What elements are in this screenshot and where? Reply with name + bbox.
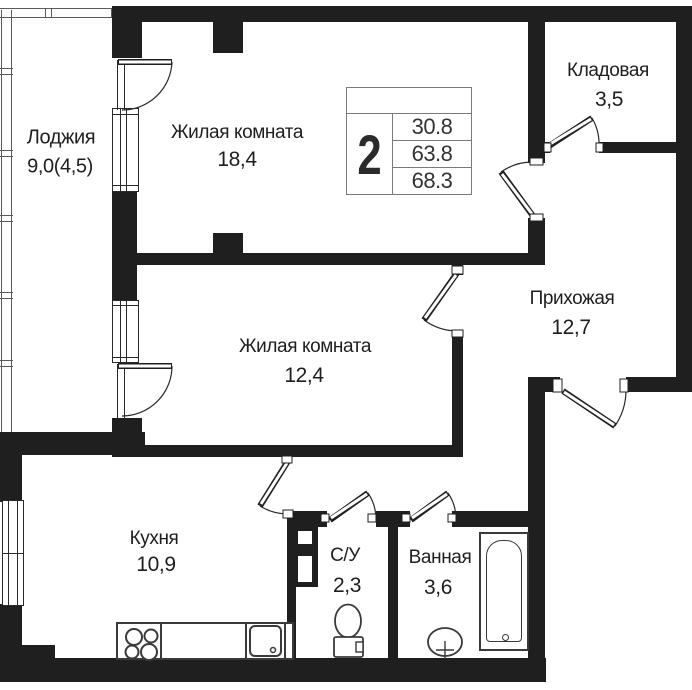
floor-plan: Лоджия 9,0(4,5) Жилая комната 18,4 Кладо… (0, 0, 692, 690)
area-value-total: 68.3 (393, 167, 471, 194)
room-label-kitchen: Кухня (130, 528, 179, 550)
room-area-living2: 12,4 (284, 364, 323, 388)
door-arc-living1-balcony (122, 62, 172, 110)
room-area-storage: 3,5 (595, 88, 623, 112)
door-arc-living1 (501, 162, 533, 172)
room-area-wc: 2,3 (333, 574, 361, 598)
room-area-living1: 18,4 (217, 148, 256, 172)
door-arc-living2-balcony (122, 366, 172, 416)
area-value-apartment: 63.8 (393, 140, 471, 167)
room-area-bathroom: 3,6 (424, 576, 452, 600)
room-label-hallway: Прихожая (530, 288, 615, 310)
room-area-kitchen: 10,9 (136, 553, 175, 577)
info-table-header (347, 88, 471, 114)
door-arc-storage (592, 118, 599, 146)
kitchen-counter (117, 623, 293, 660)
room-label-loggia: Лоджия (27, 127, 95, 150)
room-area-hallway: 12,7 (551, 316, 590, 340)
room-label-storage: Кладовая (567, 60, 649, 82)
apartment-info-table: 2 30.8 63.8 68.3 (346, 87, 472, 195)
washbasin-icon (428, 628, 462, 659)
door-arc-entrance (615, 391, 626, 426)
room-label-wc: С/У (330, 545, 360, 567)
bathtub-icon (479, 532, 529, 651)
rooms-count: 2 (347, 114, 393, 194)
room-label-living1: Жилая комната (171, 122, 303, 144)
room-area-loggia: 9,0(4,5) (27, 156, 93, 179)
room-label-bathroom: Ванная (409, 547, 472, 569)
door-arc-living2 (424, 320, 457, 331)
area-value-living: 30.8 (393, 114, 471, 140)
toilet-icon (334, 605, 363, 658)
room-label-living2: Жилая комната (239, 336, 371, 358)
